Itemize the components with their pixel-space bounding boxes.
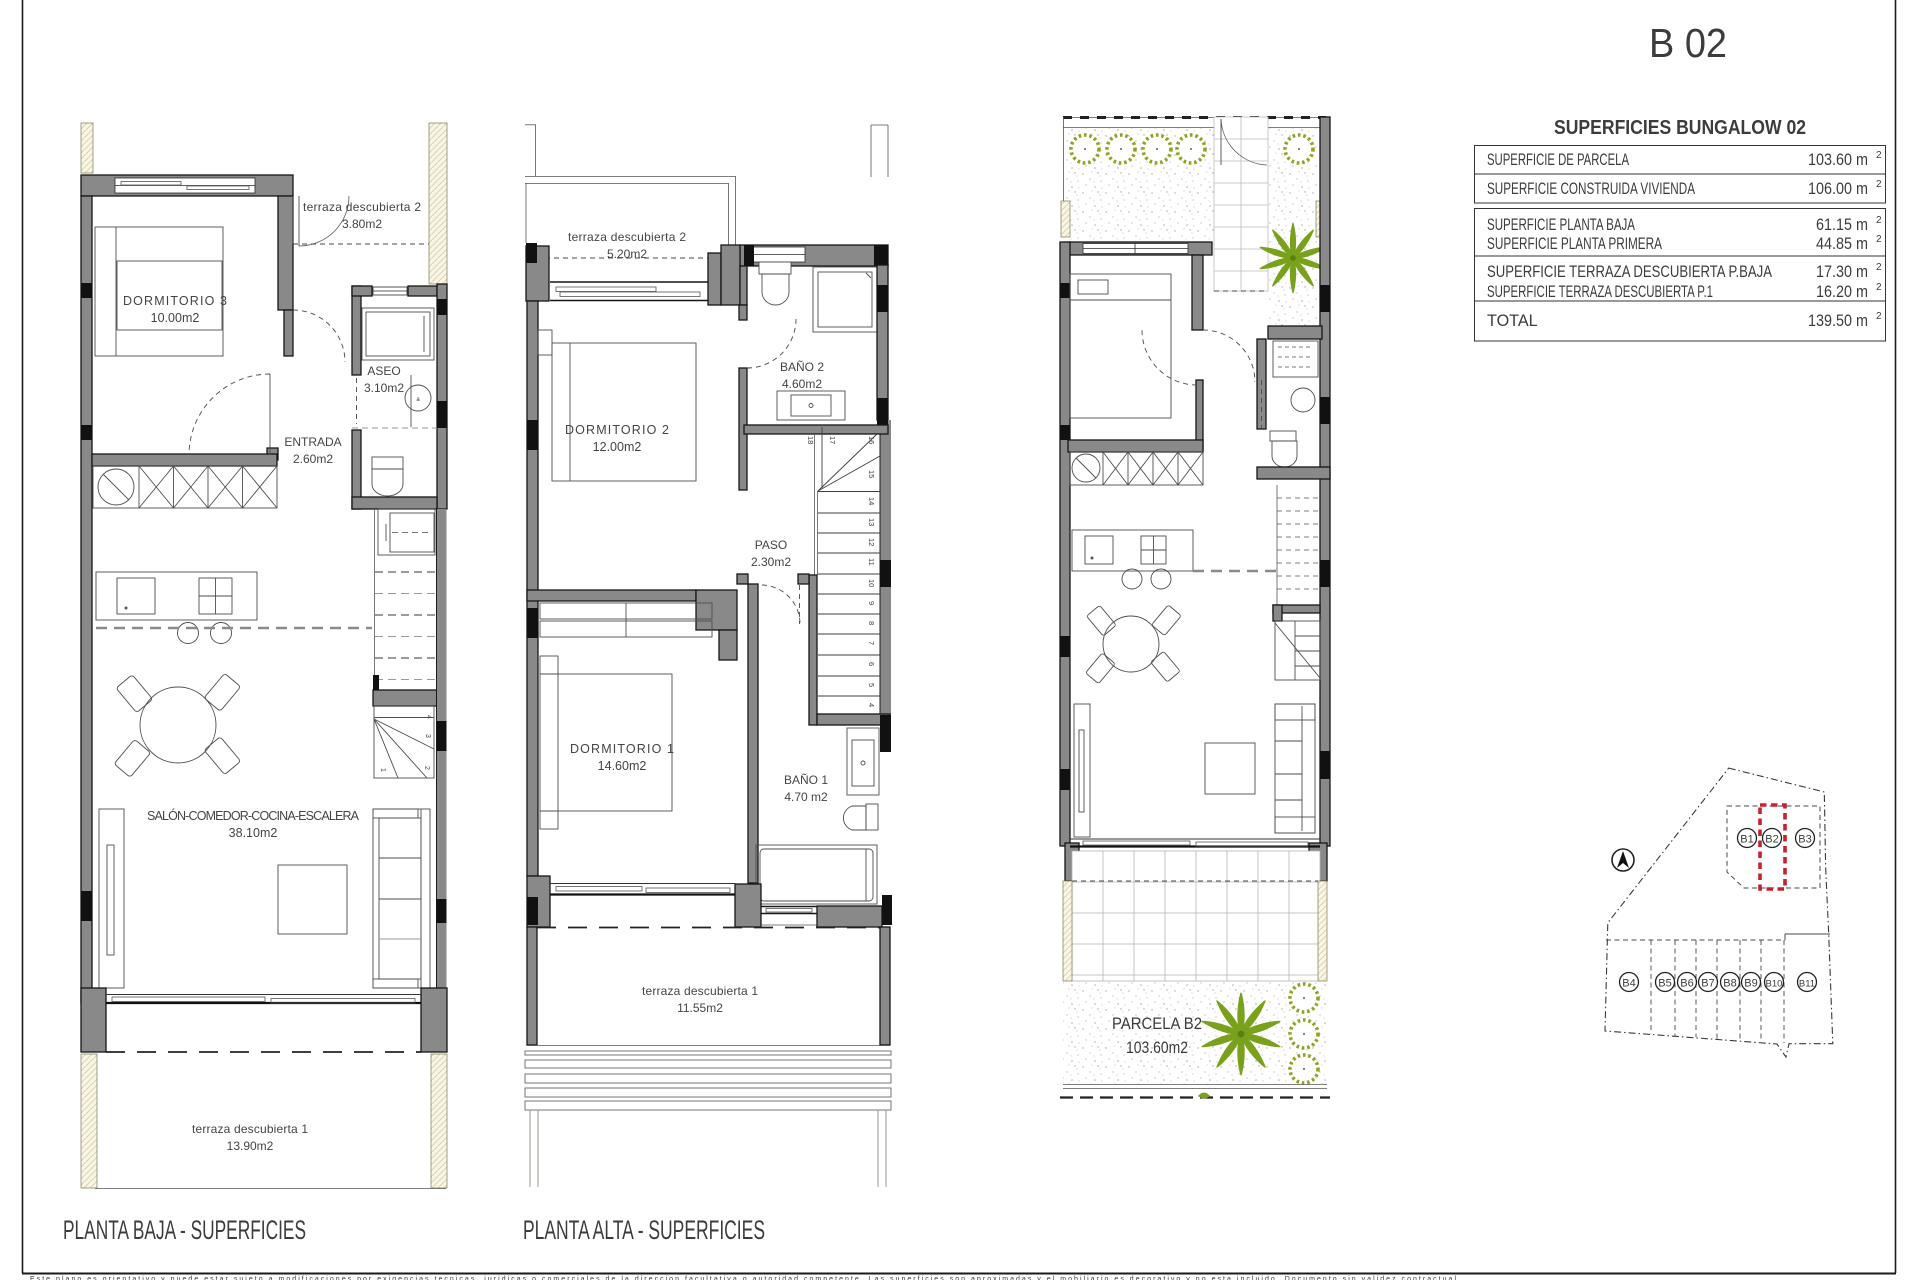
svg-text:16: 16 bbox=[867, 436, 876, 444]
svg-text:17.30 m: 17.30 m bbox=[1816, 263, 1868, 281]
svg-text:PLANTA ALTA - SUPERFICIES: PLANTA ALTA - SUPERFICIES bbox=[523, 1215, 765, 1245]
svg-text:14.60m2: 14.60m2 bbox=[598, 759, 647, 773]
svg-text:BAÑO 2: BAÑO 2 bbox=[780, 360, 824, 374]
svg-text:SUPERFICIE TERRAZA DESCUBIERTA: SUPERFICIE TERRAZA DESCUBIERTA P.BAJA bbox=[1487, 263, 1772, 281]
svg-text:B11: B11 bbox=[1799, 979, 1815, 990]
svg-text:17: 17 bbox=[828, 436, 837, 444]
svg-text:6: 6 bbox=[867, 662, 876, 666]
svg-text:TOTAL: TOTAL bbox=[1487, 312, 1538, 330]
svg-text:11: 11 bbox=[867, 558, 876, 566]
svg-text:ENTRADA: ENTRADA bbox=[284, 435, 341, 449]
svg-text:2.30m2: 2.30m2 bbox=[751, 555, 791, 569]
svg-text:2: 2 bbox=[1876, 234, 1882, 245]
svg-text:BAÑO 1: BAÑO 1 bbox=[784, 773, 828, 787]
svg-text:9: 9 bbox=[867, 601, 876, 605]
svg-text:103.60 m: 103.60 m bbox=[1808, 151, 1868, 169]
svg-text:PASO: PASO bbox=[755, 538, 787, 552]
svg-text:44.85 m: 44.85 m bbox=[1816, 235, 1868, 253]
svg-text:B9: B9 bbox=[1744, 978, 1757, 990]
svg-text:4: 4 bbox=[425, 715, 432, 719]
svg-text:terraza descubierta 2: terraza descubierta 2 bbox=[568, 230, 686, 244]
svg-text:B5: B5 bbox=[1658, 978, 1671, 990]
svg-text:2: 2 bbox=[423, 766, 430, 770]
svg-text:3.80m2: 3.80m2 bbox=[342, 217, 382, 231]
svg-text:B 02: B 02 bbox=[1649, 20, 1727, 66]
svg-text:139.50 m: 139.50 m bbox=[1808, 312, 1868, 330]
svg-text:10.00m2: 10.00m2 bbox=[151, 311, 200, 325]
svg-text:3: 3 bbox=[424, 734, 431, 738]
svg-text:B7: B7 bbox=[1701, 978, 1714, 990]
svg-text:4.60m2: 4.60m2 bbox=[782, 377, 822, 391]
svg-text:SUPERFICIE TERRAZA DESCUBIERTA: SUPERFICIE TERRAZA DESCUBIERTA P.1 bbox=[1487, 283, 1713, 301]
svg-text:2: 2 bbox=[1876, 262, 1882, 273]
svg-text:38.10m2: 38.10m2 bbox=[229, 826, 278, 840]
svg-text:SUPERFICIES BUNGALOW 02: SUPERFICIES BUNGALOW 02 bbox=[1554, 116, 1806, 139]
svg-text:B4: B4 bbox=[1622, 978, 1635, 990]
svg-text:B1: B1 bbox=[1740, 834, 1753, 846]
svg-text:10: 10 bbox=[867, 579, 876, 587]
svg-text:7: 7 bbox=[867, 641, 876, 645]
svg-text:2: 2 bbox=[1876, 179, 1882, 190]
svg-text:B3: B3 bbox=[1798, 834, 1811, 846]
svg-text:DORMITORIO 1: DORMITORIO 1 bbox=[570, 742, 674, 756]
svg-text:16.20 m: 16.20 m bbox=[1816, 283, 1868, 301]
svg-text:13: 13 bbox=[867, 518, 876, 526]
svg-text:2: 2 bbox=[1876, 311, 1882, 322]
svg-text:106.00 m: 106.00 m bbox=[1808, 180, 1868, 198]
svg-text:DORMITORIO 2: DORMITORIO 2 bbox=[565, 423, 669, 437]
svg-text:15: 15 bbox=[867, 470, 876, 478]
svg-text:2.60m2: 2.60m2 bbox=[293, 452, 333, 466]
svg-text:5.20m2: 5.20m2 bbox=[607, 247, 647, 261]
svg-text:4: 4 bbox=[867, 703, 876, 707]
svg-text:DORMITORIO 3: DORMITORIO 3 bbox=[123, 294, 227, 308]
svg-text:terraza descubierta 2: terraza descubierta 2 bbox=[303, 200, 421, 214]
svg-text:12.00m2: 12.00m2 bbox=[593, 440, 642, 454]
svg-text:PARCELA B2: PARCELA B2 bbox=[1112, 1015, 1202, 1033]
svg-text:13.90m2: 13.90m2 bbox=[227, 1139, 274, 1153]
svg-text:SUPERFICIE DE PARCELA: SUPERFICIE DE PARCELA bbox=[1487, 151, 1629, 169]
svg-text:103.60m2: 103.60m2 bbox=[1126, 1039, 1188, 1057]
svg-text:SUPERFICIE PLANTA PRIMERA: SUPERFICIE PLANTA PRIMERA bbox=[1487, 235, 1662, 253]
svg-text:terraza descubierta 1: terraza descubierta 1 bbox=[192, 1122, 308, 1136]
svg-text:2: 2 bbox=[1876, 282, 1882, 293]
svg-text:8: 8 bbox=[867, 621, 876, 625]
svg-text:PLANTA BAJA - SUPERFICIES: PLANTA BAJA - SUPERFICIES bbox=[63, 1215, 306, 1245]
svg-text:4.70 m2: 4.70 m2 bbox=[784, 790, 828, 804]
svg-text:terraza descubierta 1: terraza descubierta 1 bbox=[642, 984, 758, 998]
svg-text:1: 1 bbox=[379, 768, 386, 772]
svg-text:ASEO: ASEO bbox=[367, 364, 400, 378]
svg-text:B10: B10 bbox=[1766, 979, 1783, 990]
svg-text:B2: B2 bbox=[1765, 834, 1778, 846]
svg-text:3.10m2: 3.10m2 bbox=[364, 381, 404, 395]
svg-text:SUPERFICIE CONSTRUIDA VIVIENDA: SUPERFICIE CONSTRUIDA VIVIENDA bbox=[1487, 180, 1695, 198]
svg-text:5: 5 bbox=[867, 683, 876, 687]
svg-text:14: 14 bbox=[867, 497, 876, 505]
svg-text:B8: B8 bbox=[1723, 978, 1736, 990]
svg-text:18: 18 bbox=[806, 436, 815, 444]
svg-text:B6: B6 bbox=[1680, 978, 1693, 990]
svg-text:2: 2 bbox=[1876, 150, 1882, 161]
svg-text:SUPERFICIE PLANTA BAJA: SUPERFICIE PLANTA BAJA bbox=[1487, 216, 1635, 234]
svg-text:11.55m2: 11.55m2 bbox=[677, 1001, 723, 1015]
svg-text:2: 2 bbox=[1876, 215, 1882, 226]
svg-text:SALÓN-COMEDOR-COCINA-ESCALERA: SALÓN-COMEDOR-COCINA-ESCALERA bbox=[147, 808, 360, 823]
svg-text:12: 12 bbox=[867, 538, 876, 546]
svg-text:61.15 m: 61.15 m bbox=[1816, 216, 1868, 234]
svg-text:Este plano es orientativo y pu: Este plano es orientativo y puede estar … bbox=[30, 1276, 1460, 1280]
